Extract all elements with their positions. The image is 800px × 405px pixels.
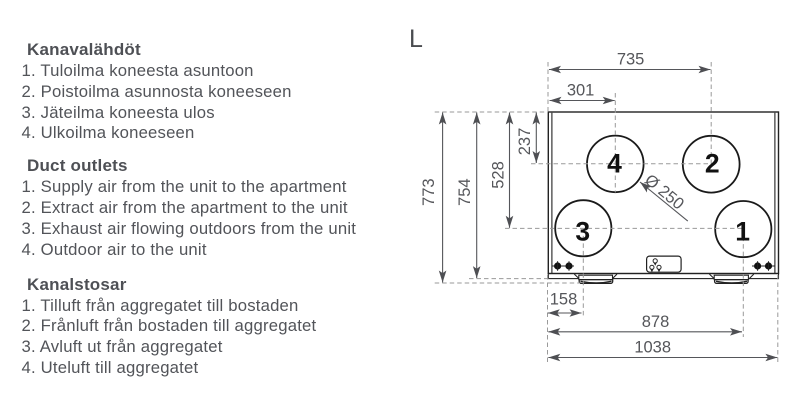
svg-text:237: 237: [516, 128, 534, 156]
svg-text:754: 754: [456, 178, 474, 206]
svg-text:878: 878: [642, 313, 670, 331]
svg-text:301: 301: [567, 82, 595, 100]
svg-text:L: L: [409, 25, 423, 53]
svg-text:3: 3: [575, 217, 590, 247]
svg-text:735: 735: [617, 51, 645, 69]
svg-text:Ø 250: Ø 250: [641, 171, 687, 213]
svg-text:1038: 1038: [634, 339, 671, 357]
svg-text:2: 2: [705, 149, 720, 179]
svg-text:4: 4: [607, 149, 622, 179]
svg-text:528: 528: [489, 161, 507, 189]
svg-text:773: 773: [420, 178, 438, 206]
svg-text:158: 158: [550, 291, 578, 309]
svg-text:1: 1: [735, 216, 750, 246]
